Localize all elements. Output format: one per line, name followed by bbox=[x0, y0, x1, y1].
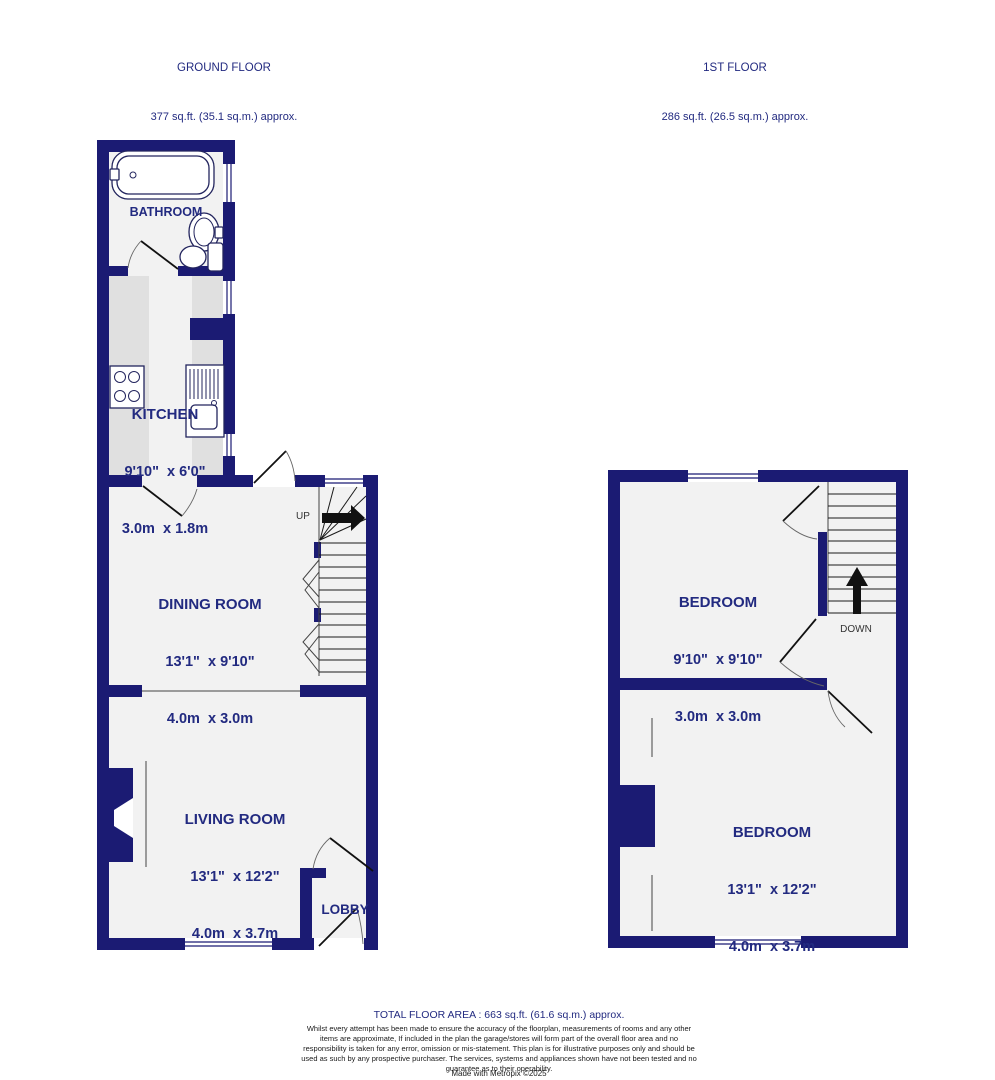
bedroom-chimney-breast bbox=[608, 785, 655, 847]
living-room-label: LIVING ROOM 13'1" x 12'2" 4.0m x 3.7m bbox=[185, 773, 286, 964]
window bbox=[325, 475, 363, 487]
first-floor-title: 1ST FLOOR bbox=[662, 62, 809, 75]
up-label: UP bbox=[296, 511, 310, 522]
disclaimer-text: Whilst every attempt has been made to en… bbox=[299, 1024, 699, 1074]
kitchen-label: KITCHEN 9'10" x 6'0" 3.0m x 1.8m bbox=[122, 368, 208, 559]
first-floor-header: 1ST FLOOR 286 sq.ft. (26.5 sq.m.) approx… bbox=[662, 26, 809, 142]
window bbox=[688, 470, 758, 482]
bedroom-one-label: BEDROOM 9'10" x 9'10" 3.0m x 3.0m bbox=[673, 556, 762, 747]
bathtub-icon bbox=[110, 151, 214, 199]
credit-text: Made with Metropix ©2025 bbox=[451, 1069, 546, 1078]
total-floor-area: TOTAL FLOOR AREA : 663 sq.ft. (61.6 sq.m… bbox=[374, 1009, 625, 1021]
bathroom-label: BATHROOM bbox=[130, 205, 203, 219]
ground-floor-title: GROUND FLOOR bbox=[151, 62, 298, 75]
first-floor-area: 286 sq.ft. (26.5 sq.m.) approx. bbox=[662, 111, 809, 124]
window bbox=[223, 164, 235, 202]
window bbox=[223, 434, 235, 456]
ground-floor-area: 377 sq.ft. (35.1 sq.m.) approx. bbox=[151, 111, 298, 124]
kitchen-chimney-breast bbox=[190, 318, 235, 340]
door-swing bbox=[254, 451, 295, 483]
window bbox=[223, 281, 235, 314]
down-label: DOWN bbox=[840, 624, 872, 635]
ground-floor-header: GROUND FLOOR 377 sq.ft. (35.1 sq.m.) app… bbox=[151, 26, 298, 142]
dining-room-label: DINING ROOM 13'1" x 9'10" 4.0m x 3.0m bbox=[158, 558, 261, 749]
floorplan-page: GROUND FLOOR 377 sq.ft. (35.1 sq.m.) app… bbox=[0, 0, 995, 1080]
lobby-label: LOBBY bbox=[321, 902, 368, 917]
lobby-wall bbox=[300, 868, 312, 938]
bedroom-two-label: BEDROOM 13'1" x 12'2" 4.0m x 3.7m bbox=[727, 786, 816, 977]
